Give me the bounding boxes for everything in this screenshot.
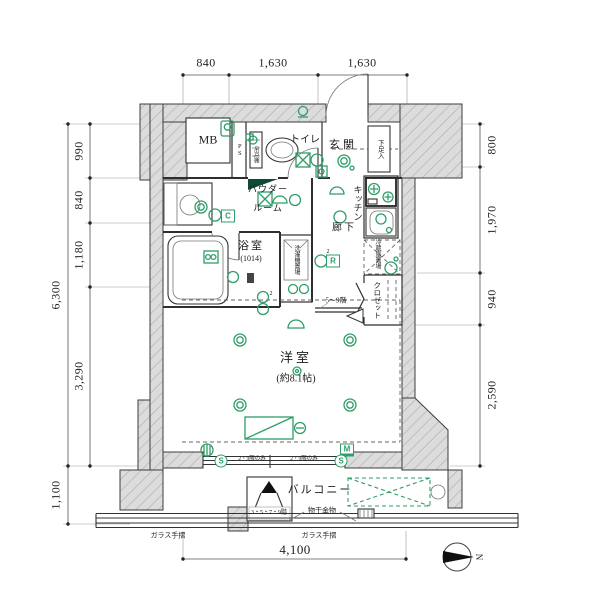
note-floors-5-9: 5〜9階 xyxy=(326,297,347,304)
note-window-floors-b: 2・9階のみ xyxy=(290,457,318,463)
kitchen-stove xyxy=(366,178,396,206)
fridge-space xyxy=(364,240,400,274)
dim-left-6300: 6,300 xyxy=(50,281,63,310)
badge-c: C xyxy=(221,210,235,223)
note-monohoshi: 物干金物 xyxy=(308,507,336,514)
dim-left-990: 990 xyxy=(73,141,86,160)
dim-right-1970: 1,970 xyxy=(486,206,499,235)
room-corridor: 廊下 xyxy=(332,224,356,235)
sensor-icon-western xyxy=(288,320,304,328)
note-hatch-floors: 3・5・7・9階 xyxy=(251,510,287,516)
floor-plan: 8401,6301,6306,3009908401,1803,2901,1008… xyxy=(0,0,607,608)
dim-left-840: 840 xyxy=(73,190,86,209)
light-icon-powder xyxy=(290,195,301,206)
room-genkan: 玄関 xyxy=(329,140,357,152)
closet-door-arrow xyxy=(347,309,363,323)
room-shoebox: 下足入 xyxy=(376,139,383,159)
floor-plan-svg xyxy=(0,0,607,608)
room-powder-2: ルーム xyxy=(253,204,283,214)
dim-right-2590: 2,590 xyxy=(486,381,499,410)
room-fridge: 冷蔵庫置場 xyxy=(374,239,380,269)
stacked-outlet-icons xyxy=(258,292,269,315)
bath-faucet-icon xyxy=(247,273,254,283)
dim-right-940: 940 xyxy=(486,289,499,308)
tv-board xyxy=(245,417,293,439)
room-cupboard: 吊戸棚 xyxy=(252,147,258,164)
balcony-railing xyxy=(96,509,518,528)
note-glassrail-right: ガラス手摺 xyxy=(302,532,337,539)
room-ps: PS xyxy=(236,143,243,157)
badge-s-left: S xyxy=(215,455,228,468)
room-powder-1: パウダー xyxy=(248,185,288,195)
light-icon-toilet xyxy=(311,154,323,166)
note-glassrail-left: ガラス手摺 xyxy=(151,532,186,539)
room-toilet: トイレ xyxy=(290,136,320,147)
room-bath: 浴室 xyxy=(238,241,264,253)
walls xyxy=(120,104,462,531)
room-mb: MB xyxy=(199,134,218,147)
room-closet: クロゼット xyxy=(373,281,381,319)
downlight-icons-western xyxy=(234,334,356,411)
dim-top-1630b: 1,630 xyxy=(348,57,377,70)
light-icon-corridor xyxy=(334,211,346,223)
badge-s-right: S xyxy=(335,455,348,468)
sensor-icon-corridor xyxy=(330,187,344,194)
dim-top-1630a: 1,630 xyxy=(259,57,288,70)
dim-left-1100: 1,100 xyxy=(50,481,63,510)
sensor-icon-powder xyxy=(273,196,287,203)
dim-right-800: 800 xyxy=(486,135,499,154)
dim-left-1180: 1,180 xyxy=(73,241,86,270)
vent-fan-icon-toilet xyxy=(296,153,310,167)
badge-r: R xyxy=(326,255,340,268)
room-balcony: バルコニー xyxy=(288,485,353,497)
room-washer: 洗濯機置場 xyxy=(293,245,299,275)
closet-hanger-lines xyxy=(388,280,396,322)
vanity-basin xyxy=(164,183,212,225)
ac-socket-icon xyxy=(295,423,306,434)
room-western-size: (約8.1帖) xyxy=(276,375,315,386)
dim-bottom-4100: 4,100 xyxy=(279,543,310,557)
note-window-floors-a: 2・9階のみ xyxy=(238,457,266,463)
dim-left-3290: 3,290 xyxy=(73,362,86,391)
light-icon-bath xyxy=(228,272,239,283)
compass xyxy=(443,543,474,571)
room-kitchen: キッチン xyxy=(353,185,362,221)
room-western: 洋室 xyxy=(280,351,312,365)
ac-outdoor-unit xyxy=(348,478,445,506)
washer-tap-icon xyxy=(300,285,309,294)
washer-outlet-icon xyxy=(289,285,298,294)
kitchen-sink xyxy=(366,208,396,236)
note-circuit-2b: 2 xyxy=(270,291,273,297)
bathtub xyxy=(168,236,228,304)
fixtures xyxy=(164,118,400,468)
room-bath-size: (1014) xyxy=(240,255,261,263)
compass-n-label: N xyxy=(473,554,483,561)
entrance-door-arc xyxy=(326,74,368,116)
balcony-light-icon xyxy=(201,444,213,456)
dim-top-840: 840 xyxy=(196,57,215,70)
entrance-outlet-icon xyxy=(338,155,354,170)
